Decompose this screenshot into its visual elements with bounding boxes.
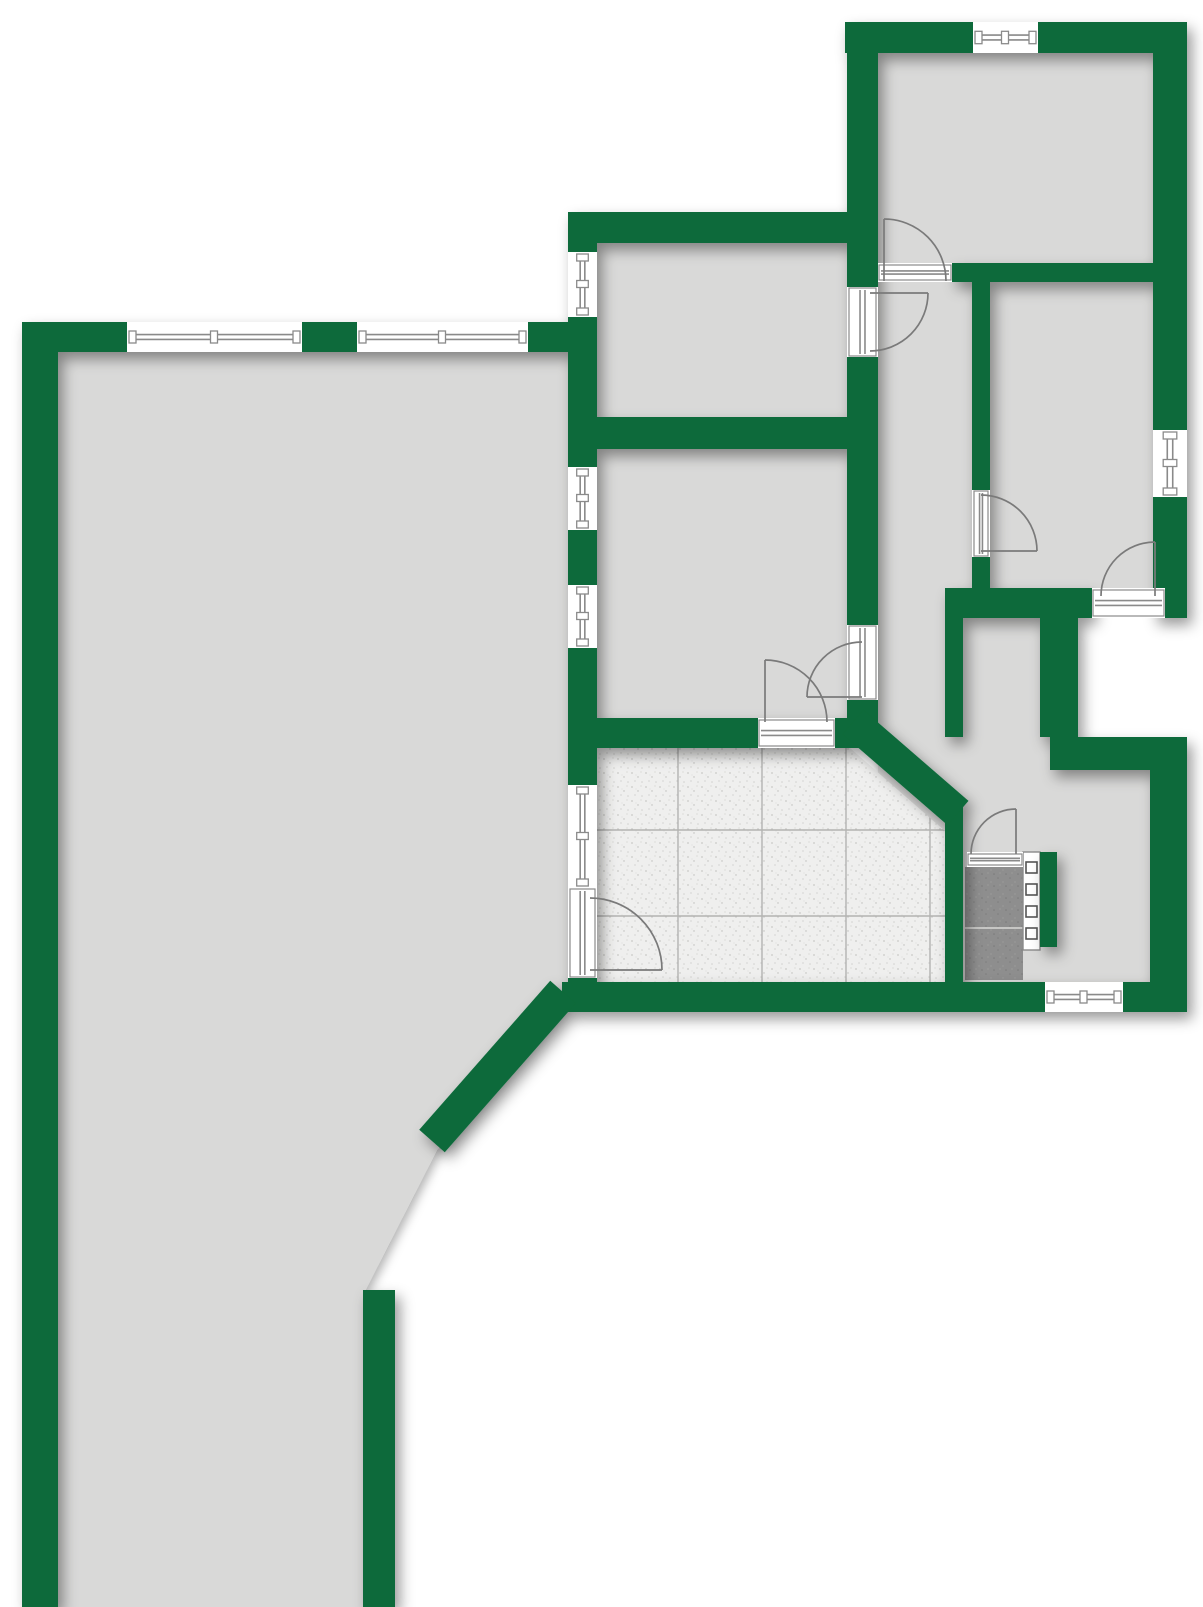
window-cap <box>129 331 136 343</box>
window-cap <box>577 613 589 620</box>
window-cap <box>1029 31 1036 43</box>
wall <box>1050 737 1187 770</box>
window-cap <box>519 331 526 343</box>
wall <box>568 212 878 243</box>
room-top-right-floor <box>878 53 1153 263</box>
room-right-floor <box>972 282 1153 588</box>
window-cap <box>1080 991 1087 1003</box>
door-opening <box>758 718 835 748</box>
window-cap <box>577 639 589 646</box>
room-top-middle-floor <box>597 243 847 417</box>
floor-plan-drawing <box>0 0 1203 1607</box>
window-cap <box>1002 31 1009 43</box>
wall <box>847 53 878 718</box>
wall <box>1040 618 1078 737</box>
wall <box>945 588 963 737</box>
door-opening <box>847 625 878 700</box>
door-opening <box>972 490 990 557</box>
window-cap <box>577 833 589 840</box>
window-cap <box>577 521 589 528</box>
loggia-notch-layer <box>1078 618 1192 737</box>
window-cap <box>975 31 982 43</box>
radiator-segment <box>1026 928 1037 939</box>
wall <box>950 588 1092 618</box>
living-area-floor <box>58 352 568 1607</box>
window-cap <box>211 331 218 343</box>
window-cap <box>439 331 446 343</box>
door-opening <box>878 263 952 282</box>
window-cap <box>1114 991 1121 1003</box>
window-cap <box>577 495 589 502</box>
window-cap <box>1163 460 1177 467</box>
window-cap <box>1047 991 1054 1003</box>
window-cap <box>1163 488 1177 495</box>
wall <box>568 417 878 449</box>
door-opening <box>1092 588 1165 618</box>
room-middle-floor <box>597 449 847 725</box>
window-cap <box>359 331 366 343</box>
window-cap <box>293 331 300 343</box>
door-opening <box>847 287 878 357</box>
wall <box>1165 588 1187 618</box>
floor-plan-page <box>0 0 1203 1607</box>
wall <box>952 263 1153 282</box>
wall <box>1150 770 1187 1012</box>
window-cap <box>577 787 589 794</box>
wall <box>22 322 58 1607</box>
dark-cell-floor <box>965 867 1023 980</box>
window-cap <box>1163 432 1177 439</box>
window-cap <box>577 254 589 261</box>
radiator-segment <box>1026 884 1037 895</box>
radiator-segment <box>1026 862 1037 873</box>
wall <box>1040 852 1057 947</box>
window-cap <box>577 281 589 288</box>
window-cap <box>577 587 589 594</box>
wall <box>945 800 963 1012</box>
wall <box>363 1290 395 1607</box>
radiator-segment <box>1026 906 1037 917</box>
window-cap <box>577 879 589 886</box>
door-opening <box>568 888 597 978</box>
window-cap <box>577 308 589 315</box>
window-cap <box>577 469 589 476</box>
loggia-notch <box>1078 618 1192 737</box>
wall <box>1153 22 1187 618</box>
